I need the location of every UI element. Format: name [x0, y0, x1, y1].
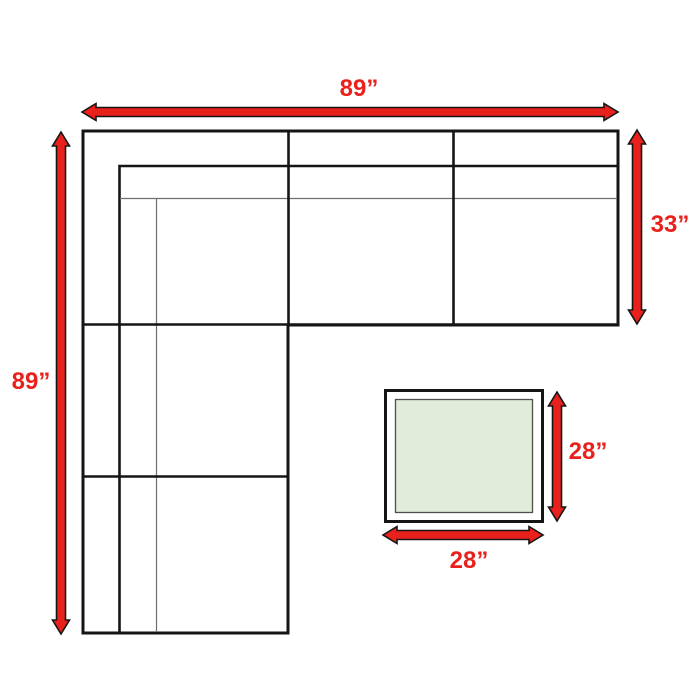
table-depth-arrow-icon [549, 392, 566, 521]
sofa-outline [83, 131, 618, 633]
sofa-width-arrow-icon [82, 104, 618, 121]
table-width-label: 28” [450, 547, 489, 574]
diagram-svg: 89” 89” 33” 28” 28” [0, 0, 700, 700]
table-depth-label: 28” [569, 438, 608, 465]
sofa-depth-arrow-icon [53, 132, 70, 634]
chaise-depth-arrow-icon [629, 130, 646, 324]
dimension-diagram: 89” 89” 33” 28” 28” [0, 0, 700, 700]
sofa-width-label: 89” [340, 75, 379, 102]
table-top-surface [396, 400, 533, 513]
sectional-sofa [83, 131, 618, 633]
table-width-arrow-icon [383, 527, 543, 544]
chaise-depth-label: 33” [651, 211, 690, 238]
sofa-depth-label: 89” [12, 368, 51, 395]
square-table [386, 391, 543, 522]
